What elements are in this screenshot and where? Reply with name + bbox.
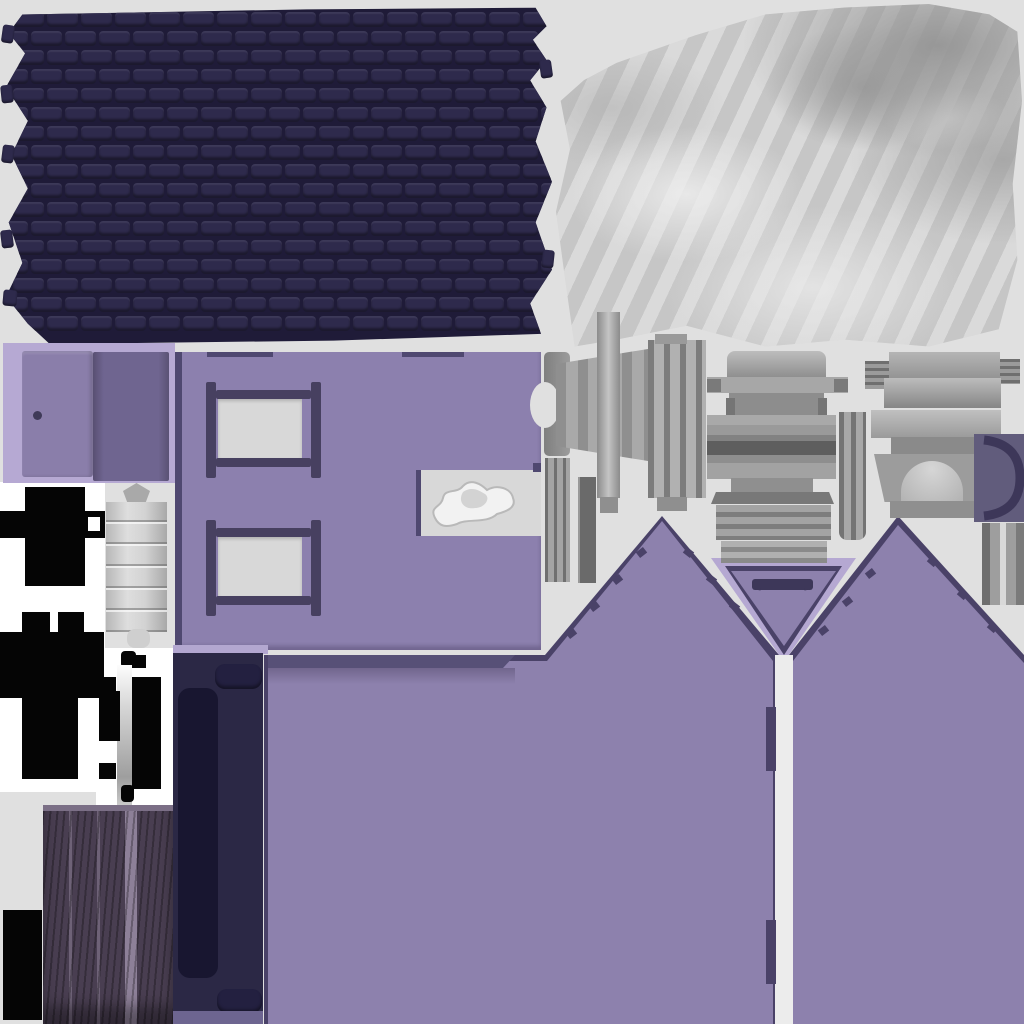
roof-tile	[81, 278, 112, 293]
vent-arch	[754, 588, 811, 624]
roof-tile	[217, 12, 248, 27]
roof-edge-flap	[0, 84, 14, 103]
ridge-panel-pill	[215, 664, 262, 689]
roof-tile	[201, 69, 232, 84]
roof-tile	[133, 221, 164, 236]
roof-tile	[353, 126, 384, 141]
roof-tile	[31, 221, 62, 236]
roof-tile	[337, 297, 368, 312]
chimney-collar-peg	[834, 379, 848, 392]
roof-tile	[167, 69, 198, 84]
roof-tile	[353, 164, 384, 179]
roof-tile	[81, 164, 112, 179]
roof-tile	[371, 259, 402, 274]
hinge-leaf-left	[99, 691, 120, 741]
roof-tile	[13, 126, 44, 141]
black-part-cross-arm-left	[0, 511, 26, 538]
roof-tile	[31, 297, 62, 312]
roof-tile	[523, 126, 554, 141]
roof-tile-row	[0, 259, 536, 274]
roof-tile	[47, 88, 78, 103]
window-frame-post	[311, 382, 321, 478]
roof-tile	[217, 164, 248, 179]
roof-tile	[523, 12, 554, 27]
roof-edge-flap	[0, 229, 14, 248]
roof-tile	[405, 145, 436, 160]
roof-tile	[251, 240, 282, 255]
roof-tile	[31, 183, 62, 198]
roof-tile	[183, 50, 214, 65]
roof-tile	[183, 164, 214, 179]
roof-tile	[405, 183, 436, 198]
roof-tile	[421, 316, 452, 331]
roof-tile	[183, 126, 214, 141]
black-part-square-hole	[88, 517, 100, 531]
curved-pipe-arc	[974, 434, 1024, 522]
roof-tile	[99, 221, 130, 236]
roof-tile	[13, 88, 44, 103]
roof-tile	[285, 164, 316, 179]
roof-tile	[251, 202, 282, 217]
roof-tile	[405, 107, 436, 122]
roof-tile	[319, 126, 350, 141]
roof-tile	[115, 88, 146, 103]
roof-tile	[507, 145, 538, 160]
roof-tile	[235, 221, 266, 236]
roof-tile	[541, 297, 572, 312]
roof-tile	[285, 240, 316, 255]
roof-tile	[0, 259, 28, 274]
roof-tile	[115, 164, 146, 179]
roof-tile-row	[0, 183, 536, 198]
roof-tile-row	[0, 31, 536, 46]
roof-tile	[0, 69, 28, 84]
roof-tile	[81, 316, 112, 331]
roof-tile	[81, 126, 112, 141]
roof-tile	[387, 240, 418, 255]
roof-tile	[99, 107, 130, 122]
roof-tile	[235, 69, 266, 84]
roof-tile	[387, 164, 418, 179]
roof-tile	[201, 145, 232, 160]
hinge-tab	[99, 677, 116, 692]
roof-tile	[387, 88, 418, 103]
wood-plank-shutter	[43, 805, 173, 1024]
roof-tile	[167, 107, 198, 122]
gray-ribbed-bar	[545, 458, 570, 582]
roof-tile	[523, 202, 554, 217]
roof-tile	[353, 88, 384, 103]
black-part-body	[0, 632, 104, 698]
roof-tile	[371, 31, 402, 46]
roof-tile	[353, 278, 384, 293]
roof-tile-row	[13, 240, 552, 255]
wall-edge-tab	[766, 707, 776, 771]
roof-tile	[269, 69, 300, 84]
window-pane	[218, 399, 302, 458]
roof-tile	[353, 50, 384, 65]
roof-tile	[455, 316, 486, 331]
roof-tile	[541, 145, 572, 160]
roof-tile	[251, 50, 282, 65]
roof-tile	[303, 259, 334, 274]
roof-tile	[473, 69, 504, 84]
roof-tile	[439, 69, 470, 84]
roof-tile	[421, 88, 452, 103]
roof-tile	[303, 107, 334, 122]
roof-tile	[99, 145, 130, 160]
ridge-panel-recess	[178, 688, 218, 978]
gray-bracket-cutout	[530, 382, 560, 428]
chimney-body-striped	[707, 415, 836, 479]
black-part-tab	[22, 612, 50, 633]
roof-tile	[81, 88, 112, 103]
window-frame-beam	[216, 390, 311, 399]
gray-side-bar	[839, 412, 866, 540]
roof-edge-flap	[1, 144, 15, 163]
roof-tile	[133, 183, 164, 198]
gray-column-foot	[600, 497, 618, 513]
roof-tile	[13, 202, 44, 217]
roof-tile	[303, 183, 334, 198]
front-door-faces-panel	[3, 343, 175, 483]
smoke-puff-bake	[427, 478, 519, 530]
roof-tile-row	[13, 202, 552, 217]
roof-tile	[183, 278, 214, 293]
roof-tile	[31, 145, 62, 160]
roof-tile	[251, 278, 282, 293]
wall-top-trim	[207, 352, 273, 357]
wall-corner-notch	[533, 463, 541, 472]
roof-tile	[251, 316, 282, 331]
roof-tile	[235, 31, 266, 46]
roof-tile	[353, 12, 384, 27]
roof-tile	[183, 12, 214, 27]
roof-tile	[65, 31, 96, 46]
roof-tile	[269, 259, 300, 274]
roof-tile	[133, 259, 164, 274]
roof-tile	[149, 164, 180, 179]
roof-tile	[489, 240, 520, 255]
ridge-panel-bottom-strip	[173, 1011, 263, 1024]
roof-tile	[455, 126, 486, 141]
roof-tile	[319, 202, 350, 217]
roof-tile	[65, 297, 96, 312]
roof-tile	[31, 69, 62, 84]
roof-tile	[65, 107, 96, 122]
side-wall-piece	[175, 352, 541, 650]
roof-tile	[0, 183, 28, 198]
roof-tile	[455, 88, 486, 103]
roof-tile	[303, 221, 334, 236]
roof-tile	[371, 145, 402, 160]
roof-tile	[557, 50, 588, 65]
roof-tile	[489, 50, 520, 65]
roof-tile	[235, 107, 266, 122]
roof-tile	[167, 259, 198, 274]
roof-tile	[47, 278, 78, 293]
wall-notch-rim	[416, 470, 421, 536]
hinge-leaf-right	[132, 677, 161, 789]
roof-tile	[217, 316, 248, 331]
roof-tile	[337, 259, 368, 274]
chimney-brick-band-small	[721, 541, 827, 563]
roof-tile	[81, 12, 112, 27]
roof-tile	[115, 202, 146, 217]
roof-tile	[133, 69, 164, 84]
roof-tile	[81, 240, 112, 255]
roof-tile	[455, 164, 486, 179]
roof-tile	[65, 259, 96, 274]
roof-tile	[65, 69, 96, 84]
roof-tile	[269, 221, 300, 236]
gray-tall-column	[597, 312, 620, 498]
roof-tile	[523, 88, 554, 103]
chimney-cap	[727, 351, 826, 377]
roof-tile	[201, 297, 232, 312]
chimney-brick-band	[716, 505, 831, 540]
roof-tile	[269, 297, 300, 312]
window-frame-beam	[216, 528, 311, 537]
roof-tile	[99, 183, 130, 198]
roof-tile	[319, 12, 350, 27]
gray-column-foot	[657, 497, 687, 511]
roof-tile	[201, 183, 232, 198]
roof-tile	[541, 31, 572, 46]
roof-tile	[319, 88, 350, 103]
roof-tile	[99, 69, 130, 84]
mantel-top-box	[889, 352, 1000, 379]
roof-tile	[251, 164, 282, 179]
roof-tile	[167, 297, 198, 312]
roof-tile	[387, 278, 418, 293]
black-part-cross-body	[25, 487, 85, 586]
roof-tile	[507, 69, 538, 84]
window-frame-post	[311, 520, 321, 616]
roof-tile	[217, 50, 248, 65]
roof-tile	[455, 12, 486, 27]
roof-tile	[65, 183, 96, 198]
roof-tile	[149, 50, 180, 65]
roof-tile	[421, 126, 452, 141]
roof-tile	[455, 50, 486, 65]
chimney-base-box	[731, 478, 813, 493]
roof-tile	[251, 12, 282, 27]
chimney-neck-box	[729, 393, 824, 415]
ridge-panel-pill	[217, 989, 262, 1013]
chimney-collar-peg	[707, 379, 721, 392]
roof-tile	[507, 297, 538, 312]
gray-column-segment	[982, 523, 1024, 605]
roof-tile	[473, 259, 504, 274]
roof-tile	[303, 31, 334, 46]
roof-tile	[149, 316, 180, 331]
roof-tile	[47, 164, 78, 179]
roof-tile	[31, 259, 62, 274]
metal-column-foot	[127, 629, 150, 648]
roof-tile	[421, 12, 452, 27]
roof-tile	[489, 12, 520, 27]
mantel-ear-right	[999, 359, 1020, 384]
door-knob	[33, 411, 42, 420]
roof-tile	[439, 31, 470, 46]
gray-slim-bar	[578, 477, 596, 583]
roof-tile	[371, 297, 402, 312]
wall-edge-tab	[766, 920, 776, 984]
roof-tile	[489, 88, 520, 103]
roof-tile	[183, 88, 214, 103]
roof-tile	[371, 221, 402, 236]
roof-tile	[65, 221, 96, 236]
roof-tile	[13, 50, 44, 65]
roof-tile	[47, 202, 78, 217]
wall-left-edge	[175, 352, 182, 650]
roof-tile	[473, 297, 504, 312]
roof-tile	[167, 31, 198, 46]
roof-tile	[0, 107, 28, 122]
roof-tile	[455, 278, 486, 293]
roof-tile	[115, 126, 146, 141]
roof-tile	[473, 31, 504, 46]
roof-tile	[167, 183, 198, 198]
roof-tile	[81, 50, 112, 65]
eave-soft-shadow	[268, 668, 515, 684]
roof-tile	[337, 183, 368, 198]
roof-tile	[235, 183, 266, 198]
roof-tile	[99, 259, 130, 274]
roof-tile	[47, 316, 78, 331]
roof-tile	[303, 297, 334, 312]
roof-tile	[371, 69, 402, 84]
roof-tile	[387, 50, 418, 65]
texture-atlas-sheet	[0, 0, 1024, 1024]
roof-tile	[269, 183, 300, 198]
mantel-band	[884, 378, 1001, 408]
chimney-base-wedge	[711, 492, 834, 504]
roof-tile-row	[0, 145, 536, 160]
metal-column-body	[106, 502, 167, 632]
roof-tile	[269, 145, 300, 160]
roof-tile	[235, 259, 266, 274]
roof-tile	[149, 278, 180, 293]
roof-tile	[473, 107, 504, 122]
roof-tile	[269, 107, 300, 122]
window-frame-post	[206, 520, 216, 616]
roof-tile	[421, 164, 452, 179]
roof-tile	[439, 107, 470, 122]
draped-cloth-bake	[556, 4, 1022, 350]
roof-tile	[47, 12, 78, 27]
roof-tile	[47, 50, 78, 65]
roof-tile	[285, 126, 316, 141]
roof-tile	[421, 278, 452, 293]
roof-edge-flap	[1, 24, 15, 43]
roof-tile	[285, 12, 316, 27]
vent-arch-stroke	[758, 588, 807, 590]
roof-tile	[387, 202, 418, 217]
roof-tile	[439, 221, 470, 236]
roof-tile	[507, 107, 538, 122]
roof-tile	[523, 316, 554, 331]
roof-tile	[405, 297, 436, 312]
roof-tile	[523, 278, 554, 293]
window-pane	[218, 537, 302, 596]
roof-tile	[183, 316, 214, 331]
roof-tile	[115, 278, 146, 293]
roof-tile	[269, 31, 300, 46]
roof-tile-row	[13, 88, 552, 103]
roof-tile	[149, 240, 180, 255]
roof-tile	[405, 259, 436, 274]
roof-tile	[319, 50, 350, 65]
roof-tile	[319, 278, 350, 293]
roof-tile	[217, 88, 248, 103]
pipe-arc-stroke	[984, 440, 1020, 516]
roof-tile	[371, 107, 402, 122]
roof-tile	[13, 240, 44, 255]
roof-tile	[455, 240, 486, 255]
roof-tile	[489, 202, 520, 217]
roof-tile-row	[0, 107, 536, 122]
roof-tile	[285, 316, 316, 331]
roof-tile	[337, 31, 368, 46]
roof-tile-row	[0, 297, 536, 312]
roof-shingle-sheet	[6, 6, 552, 344]
roof-tile	[303, 69, 334, 84]
roof-tile	[133, 297, 164, 312]
wood-plank-top-cap	[43, 805, 173, 811]
roof-tile	[167, 221, 198, 236]
roof-tile	[439, 145, 470, 160]
fireplace-base-step	[890, 501, 977, 518]
roof-tile	[421, 202, 452, 217]
wall-top-trim	[402, 352, 464, 357]
roof-tile-row	[0, 221, 536, 236]
roof-tile	[31, 107, 62, 122]
hinge-pin-bottom	[121, 785, 134, 802]
roof-tile	[13, 12, 44, 27]
roof-tile	[149, 12, 180, 27]
roof-tile	[235, 145, 266, 160]
roof-tile	[149, 202, 180, 217]
roof-tile	[387, 126, 418, 141]
roof-tile	[353, 316, 384, 331]
roof-tile	[31, 31, 62, 46]
roof-tile	[507, 259, 538, 274]
roof-ridge-panel	[173, 653, 263, 1024]
roof-tile	[285, 88, 316, 103]
roof-tile	[421, 240, 452, 255]
roof-edge-flap	[2, 289, 17, 306]
roof-tile	[405, 69, 436, 84]
roof-tile	[303, 145, 334, 160]
roof-tile	[65, 145, 96, 160]
roof-tile	[353, 240, 384, 255]
roof-tile	[319, 240, 350, 255]
black-part-tab	[58, 612, 84, 633]
roof-tile-row	[13, 12, 552, 27]
roof-tile-row	[13, 316, 552, 331]
roof-tile-row	[13, 164, 552, 179]
roof-tile	[13, 164, 44, 179]
roof-tile	[285, 50, 316, 65]
roof-tile-row	[13, 50, 552, 65]
roof-tile	[133, 31, 164, 46]
roof-tile	[217, 202, 248, 217]
roof-tile	[473, 145, 504, 160]
roof-tile	[473, 183, 504, 198]
black-part-bottom-rect	[3, 910, 42, 1020]
